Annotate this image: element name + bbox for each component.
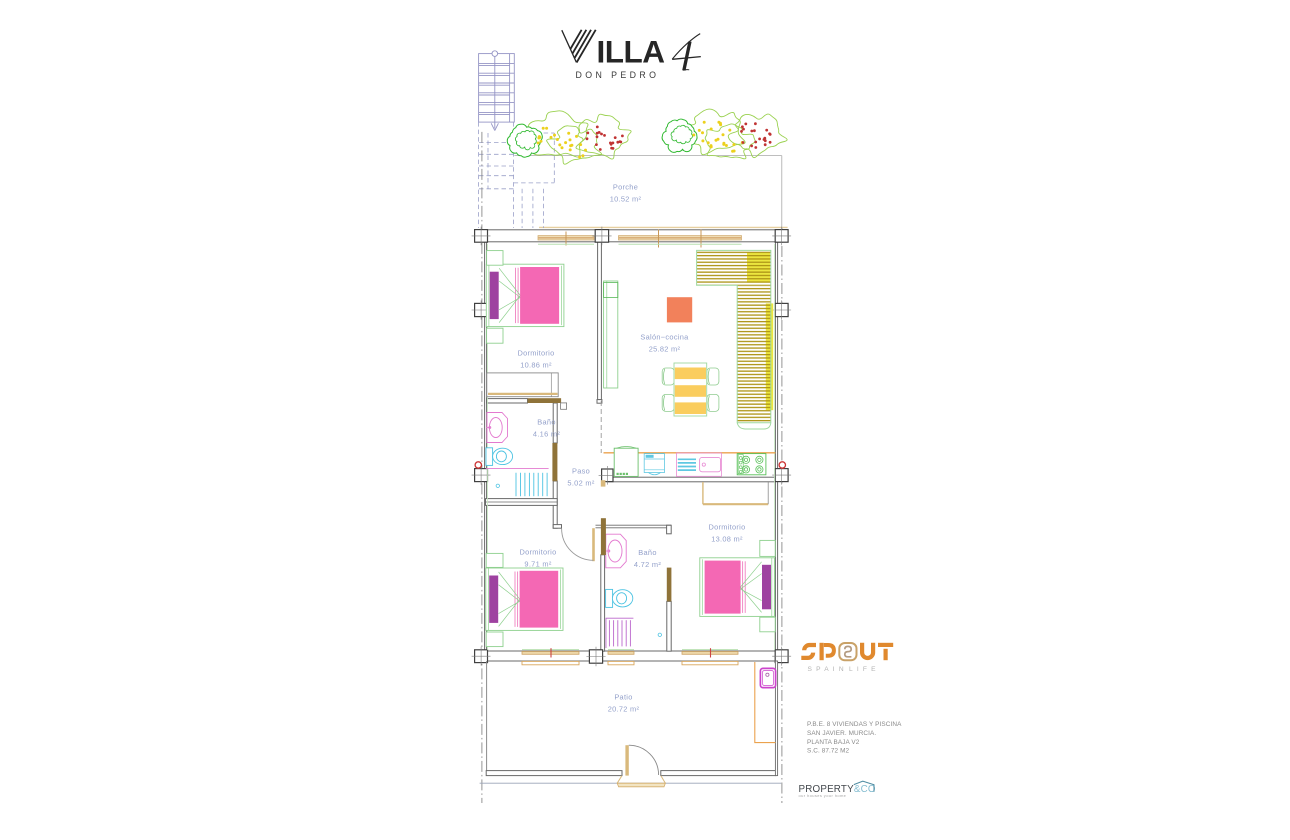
svg-text:ILLA: ILLA [597,33,665,69]
svg-text:13.08 m²: 13.08 m² [711,534,743,543]
svg-text:DON PEDRO: DON PEDRO [576,70,660,80]
svg-text:Baño: Baño [638,548,656,557]
svg-text:Dormitorio: Dormitorio [519,548,556,557]
svg-text:SPAIN: SPAIN [808,666,848,673]
svg-text:20.72 m²: 20.72 m² [608,704,640,713]
svg-text:Baño: Baño [537,418,555,427]
svg-text:our houses your home: our houses your home [799,793,847,798]
svg-text:4.72 m²: 4.72 m² [634,560,661,569]
svg-text:Porche: Porche [613,183,638,192]
svg-text:Patio: Patio [614,693,632,702]
svg-text:10.52 m²: 10.52 m² [610,194,642,203]
svg-text:9.71 m²: 9.71 m² [524,559,551,568]
svg-text:Paso: Paso [572,467,590,476]
svg-text:Dormitorio: Dormitorio [708,523,745,532]
svg-text:LIFE: LIFE [849,666,880,673]
svg-text:Salón−cocina: Salón−cocina [640,333,689,342]
svg-text:Dormitorio: Dormitorio [517,349,554,358]
svg-text:25.82 m²: 25.82 m² [649,344,681,353]
svg-text:P.B.E. 8 VIVIENDAS Y PISCINA: P.B.E. 8 VIVIENDAS Y PISCINA [807,721,902,728]
svg-text:4.16 m²: 4.16 m² [533,429,560,438]
svg-text:5.02 m²: 5.02 m² [567,478,594,487]
svg-text:SAN JAVIER. MURCIA.: SAN JAVIER. MURCIA. [807,730,876,737]
svg-text:10.86 m²: 10.86 m² [520,360,552,369]
svg-text:S.C. 87.72 M2: S.C. 87.72 M2 [807,748,849,755]
svg-text:PLANTA BAJA V2: PLANTA BAJA V2 [807,739,860,746]
